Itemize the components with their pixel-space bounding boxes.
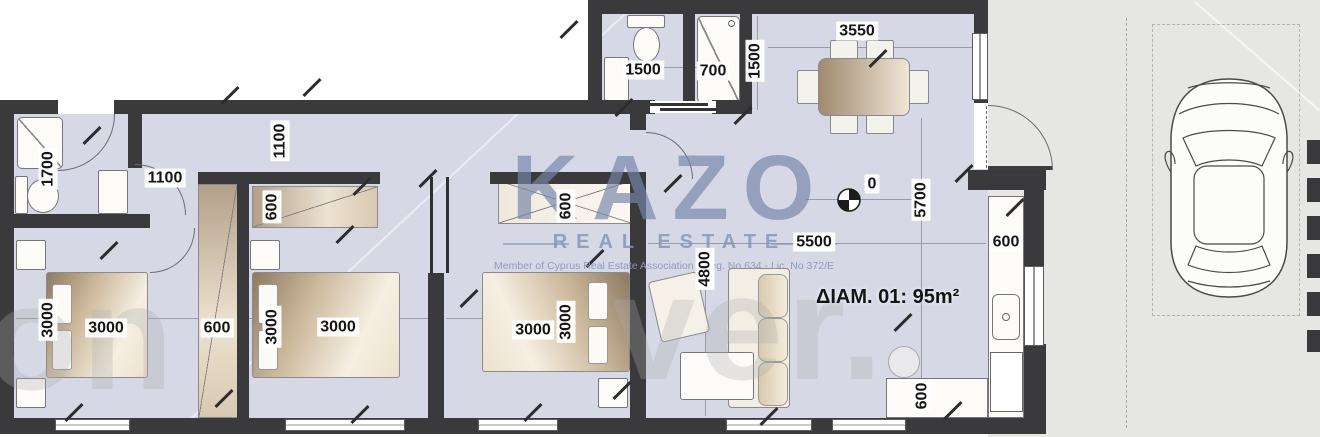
- dimension-line: [921, 118, 922, 416]
- boundary-wall-dashed: [1307, 140, 1320, 352]
- entrance-door-leaf: [988, 166, 1052, 170]
- wall: [1024, 190, 1044, 268]
- wall: [683, 14, 695, 110]
- membership-text: Member of Cyprus Real Estate Association: [494, 260, 694, 272]
- window: [1024, 266, 1044, 346]
- kazo-membership-line: Member of Cyprus Real Estate Association…: [494, 260, 834, 272]
- pocket-door-rail: [650, 103, 708, 106]
- nightstand-icon: [250, 240, 280, 270]
- dimension-label: 5500: [793, 233, 835, 252]
- logo-divider-line: [503, 243, 569, 245]
- dimension-label: 3000: [557, 301, 576, 343]
- wall: [128, 114, 142, 168]
- round-table-icon: [888, 346, 920, 378]
- dimension-label: 3000: [263, 306, 282, 348]
- wall: [0, 214, 150, 228]
- pocket-door-rail: [660, 108, 718, 111]
- window: [285, 419, 405, 431]
- wall: [1024, 344, 1046, 434]
- dimension-label: 0: [865, 175, 880, 194]
- pillow-icon: [588, 326, 608, 364]
- dimension-label: 4800: [696, 248, 715, 290]
- background-watermark-right: ver.: [612, 252, 887, 402]
- dimension-tick: [559, 20, 578, 39]
- door-opening: [58, 100, 114, 114]
- dimension-label: 600: [990, 233, 1023, 252]
- kitchen-sink-drain-icon: [1002, 313, 1010, 321]
- dimension-label: 1500: [746, 40, 765, 82]
- shower-head-icon: [728, 20, 735, 27]
- dimension-label: 1700: [39, 148, 58, 190]
- wall: [198, 172, 380, 184]
- sink-icon: [98, 170, 128, 214]
- dimension-label: 3550: [836, 22, 878, 41]
- dimension-label: 1500: [622, 61, 664, 80]
- dimension-label: 1100: [271, 121, 290, 162]
- sliding-partition: [446, 177, 449, 273]
- dimension-label: 3000: [39, 299, 58, 341]
- window: [972, 33, 988, 100]
- window: [478, 419, 558, 431]
- dimension-tick: [302, 78, 321, 97]
- floor-plan: on ver.: [0, 0, 1320, 437]
- window: [832, 419, 906, 431]
- parking-lane-line: [1126, 18, 1127, 428]
- wall: [588, 0, 602, 100]
- car-top-view-icon: [1158, 72, 1300, 304]
- wall: [428, 273, 444, 418]
- wall: [968, 170, 1046, 190]
- apartment-label: ΔΙΑΜ. 01: 95m²: [816, 286, 959, 309]
- wardrobe-icon: [198, 184, 238, 418]
- dimension-label: 1100: [145, 169, 186, 188]
- entrance-door-jamb: [986, 106, 987, 168]
- wall: [974, 0, 988, 35]
- dimension-label: 600: [557, 190, 576, 223]
- kazo-logo: KAZO: [498, 140, 842, 236]
- stove-icon: [990, 352, 1023, 412]
- dimension-label: 600: [201, 319, 234, 338]
- dimension-label: 3000: [317, 318, 359, 337]
- dimension-label: 5700: [912, 179, 931, 221]
- wall: [630, 114, 646, 130]
- wall: [588, 0, 988, 14]
- pillow-icon: [588, 282, 608, 320]
- kitchen-counter-icon: [886, 378, 988, 418]
- toilet-bowl-icon: [633, 27, 660, 62]
- dimension-label: 3000: [85, 319, 127, 338]
- dimension-label: 600: [263, 191, 282, 224]
- wall: [237, 172, 249, 418]
- dimension-label: 3000: [512, 321, 554, 340]
- dimension-label: 600: [913, 380, 932, 413]
- registration-text: Reg. No.634 - Lic. No 372/E: [703, 260, 834, 272]
- window: [726, 419, 812, 431]
- dimension-label: 700: [697, 62, 730, 81]
- dining-table-icon: [818, 58, 910, 116]
- shower-icon: [697, 16, 740, 103]
- door-opening: [150, 214, 195, 228]
- sliding-partition: [430, 177, 433, 273]
